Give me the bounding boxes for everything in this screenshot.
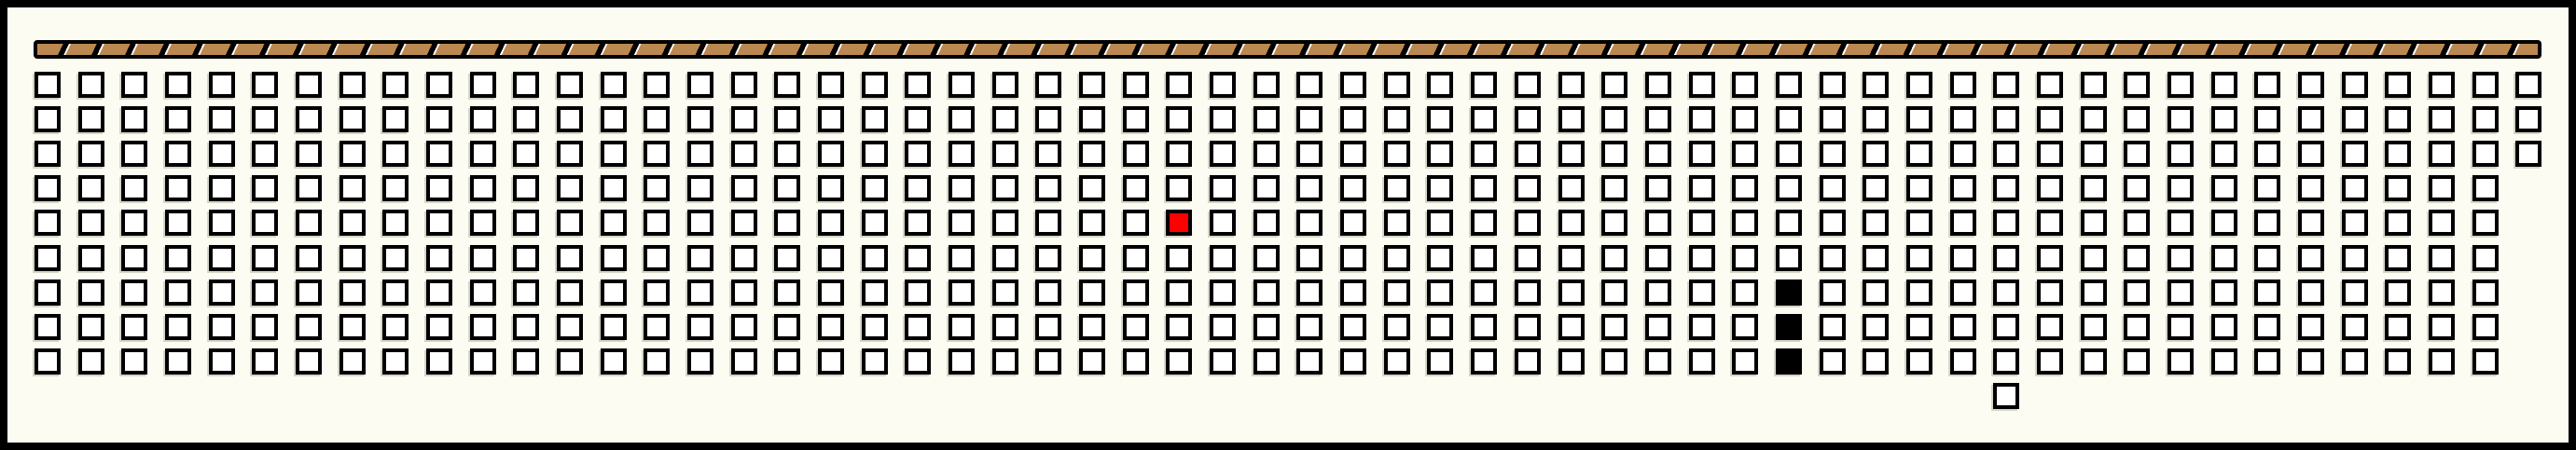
seat-cell[interactable]	[2472, 106, 2499, 132]
seat-cell[interactable]	[1210, 280, 1236, 306]
seat-cell[interactable]	[992, 280, 1018, 306]
seat-cell[interactable]	[1427, 280, 1453, 306]
seat-cell[interactable]	[992, 245, 1018, 271]
seat-cell[interactable]	[2472, 280, 2499, 306]
seat-cell[interactable]	[78, 280, 104, 306]
seat-cell[interactable]	[1601, 141, 1627, 167]
seat-cell[interactable]	[2298, 175, 2324, 201]
seat-cell[interactable]	[1035, 348, 1061, 375]
seat-cell[interactable]	[252, 348, 278, 375]
seat-cell[interactable]	[1820, 314, 1846, 340]
seat-cell[interactable]	[2429, 245, 2455, 271]
seat-cell[interactable]	[2124, 348, 2150, 375]
seat-cell[interactable]	[818, 175, 844, 201]
seat-cell[interactable]	[687, 245, 713, 271]
seat-cell[interactable]	[1776, 210, 1802, 236]
seat-cell[interactable]	[35, 245, 61, 271]
seat-cell[interactable]	[1166, 141, 1192, 167]
seat-cell[interactable]	[513, 72, 539, 98]
seat-cell[interactable]	[1166, 314, 1192, 340]
seat-cell[interactable]	[644, 348, 670, 375]
seat-cell[interactable]	[1427, 106, 1453, 132]
seat-cell[interactable]	[2385, 314, 2411, 340]
seat-cell[interactable]	[1863, 106, 1889, 132]
seat-cell[interactable]	[426, 348, 452, 375]
seat-cell[interactable]	[1601, 175, 1627, 201]
seat-cell[interactable]	[2037, 141, 2063, 167]
seat-cell[interactable]	[2472, 314, 2499, 340]
seat-cell[interactable]	[296, 210, 322, 236]
seat-cell[interactable]	[1210, 106, 1236, 132]
seat-cell[interactable]	[774, 72, 800, 98]
seat-cell[interactable]	[1079, 210, 1105, 236]
seat-cell[interactable]	[1993, 72, 2019, 98]
seat-cell[interactable]	[905, 210, 931, 236]
seat-cell[interactable]	[1471, 314, 1497, 340]
seat-cell[interactable]	[1645, 210, 1671, 236]
seat-cell[interactable]	[731, 175, 757, 201]
seat-cell[interactable]	[382, 314, 409, 340]
seat-cell[interactable]	[426, 245, 452, 271]
seat-cell[interactable]	[209, 245, 235, 271]
seat-cell[interactable]	[1732, 280, 1758, 306]
seat-cell[interactable]	[513, 245, 539, 271]
seat-cell[interactable]	[1253, 175, 1280, 201]
seat-cell[interactable]	[1993, 175, 2019, 201]
seat-cell[interactable]	[1210, 245, 1236, 271]
seat-cell[interactable]	[1296, 314, 1323, 340]
seat-cell[interactable]	[35, 72, 61, 98]
seat-cell[interactable]	[1123, 245, 1149, 271]
seat-cell[interactable]	[2124, 245, 2150, 271]
seat-cell[interactable]	[1950, 175, 1976, 201]
seat-cell[interactable]	[905, 72, 931, 98]
seat-cell[interactable]	[862, 314, 888, 340]
seat-cell[interactable]	[949, 175, 975, 201]
seat-cell[interactable]	[774, 106, 800, 132]
seat-cell[interactable]	[1471, 210, 1497, 236]
seat-cell[interactable]	[1906, 280, 1932, 306]
seat-cell[interactable]	[382, 72, 409, 98]
seat-cell[interactable]	[949, 348, 975, 375]
seat-cell[interactable]	[2081, 175, 2107, 201]
seat-cell[interactable]	[1558, 72, 1585, 98]
seat-cell[interactable]	[2124, 106, 2150, 132]
seat-cell[interactable]	[1601, 106, 1627, 132]
seat-cell[interactable]	[1645, 245, 1671, 271]
seat-cell[interactable]	[557, 141, 583, 167]
seat-cell[interactable]	[470, 245, 496, 271]
seat-cell[interactable]	[731, 106, 757, 132]
seat-cell[interactable]	[2254, 175, 2280, 201]
seat-cell[interactable]	[2124, 141, 2150, 167]
seat-cell[interactable]	[2081, 106, 2107, 132]
seat-cell[interactable]	[2124, 72, 2150, 98]
seat-cell[interactable]	[1863, 141, 1889, 167]
seat-cell[interactable]	[296, 348, 322, 375]
seat-cell[interactable]	[1079, 175, 1105, 201]
seat-cell[interactable]	[1732, 210, 1758, 236]
seat-cell[interactable]	[818, 314, 844, 340]
seat-cell[interactable]	[905, 245, 931, 271]
seat-cell[interactable]	[2211, 280, 2237, 306]
seat-cell[interactable]	[1384, 72, 1410, 98]
seat-cell[interactable]	[1689, 141, 1715, 167]
seat-cell[interactable]	[296, 141, 322, 167]
seat-cell[interactable]	[2342, 175, 2368, 201]
seat-cell[interactable]	[1471, 106, 1497, 132]
seat-cell[interactable]	[2342, 314, 2368, 340]
seat-cell[interactable]	[1166, 210, 1192, 236]
seat-cell[interactable]	[1384, 210, 1410, 236]
seat-cell[interactable]	[1427, 348, 1453, 375]
seat-cell[interactable]	[1035, 245, 1061, 271]
seat-cell[interactable]	[2342, 280, 2368, 306]
seat-cell[interactable]	[1079, 106, 1105, 132]
seat-cell[interactable]	[470, 141, 496, 167]
seat-cell[interactable]	[470, 175, 496, 201]
seat-cell[interactable]	[687, 348, 713, 375]
seat-cell[interactable]	[862, 280, 888, 306]
seat-cell[interactable]	[296, 314, 322, 340]
seat-cell[interactable]	[1340, 175, 1366, 201]
seat-cell[interactable]	[121, 280, 147, 306]
seat-cell[interactable]	[774, 141, 800, 167]
seat-cell[interactable]	[296, 175, 322, 201]
seat-cell[interactable]	[121, 245, 147, 271]
seat-cell[interactable]	[1601, 72, 1627, 98]
seat-cell[interactable]	[339, 72, 366, 98]
seat-cell[interactable]	[1645, 314, 1671, 340]
seat-cell[interactable]	[2211, 106, 2237, 132]
seat-cell[interactable]	[1732, 175, 1758, 201]
seat-cell[interactable]	[2385, 175, 2411, 201]
seat-cell[interactable]	[513, 141, 539, 167]
seat-cell[interactable]	[426, 280, 452, 306]
seat-cell[interactable]	[557, 245, 583, 271]
seat-cell[interactable]	[818, 280, 844, 306]
seat-cell[interactable]	[687, 314, 713, 340]
seat-cell[interactable]	[2211, 245, 2237, 271]
seat-cell[interactable]	[2342, 348, 2368, 375]
seat-cell[interactable]	[2472, 141, 2499, 167]
seat-cell[interactable]	[949, 72, 975, 98]
seat-cell[interactable]	[2515, 106, 2541, 132]
seat-cell[interactable]	[426, 314, 452, 340]
seat-cell[interactable]	[1427, 314, 1453, 340]
seat-cell[interactable]	[687, 141, 713, 167]
seat-cell[interactable]	[1384, 175, 1410, 201]
seat-cell[interactable]	[121, 141, 147, 167]
seat-cell[interactable]	[296, 245, 322, 271]
seat-cell[interactable]	[1035, 72, 1061, 98]
seat-cell[interactable]	[818, 72, 844, 98]
seat-cell[interactable]	[1515, 314, 1541, 340]
seat-cell[interactable]	[2385, 106, 2411, 132]
seat-cell[interactable]	[2472, 175, 2499, 201]
seat-cell[interactable]	[1515, 175, 1541, 201]
seat-cell[interactable]	[1340, 141, 1366, 167]
seat-cell[interactable]	[1123, 72, 1149, 98]
seat-cell[interactable]	[209, 280, 235, 306]
seat-cell[interactable]	[992, 210, 1018, 236]
seat-cell[interactable]	[2211, 72, 2237, 98]
seat-cell[interactable]	[1384, 280, 1410, 306]
seat-cell[interactable]	[1079, 72, 1105, 98]
seat-cell[interactable]	[78, 175, 104, 201]
seat-cell[interactable]	[731, 314, 757, 340]
seat-cell[interactable]	[992, 314, 1018, 340]
seat-cell[interactable]	[2342, 72, 2368, 98]
seat-cell[interactable]	[1906, 141, 1932, 167]
seat-cell[interactable]	[1993, 348, 2019, 375]
seat-cell[interactable]	[2342, 141, 2368, 167]
seat-cell[interactable]	[2298, 348, 2324, 375]
seat-cell[interactable]	[339, 348, 366, 375]
seat-cell[interactable]	[1166, 245, 1192, 271]
seat-cell[interactable]	[2254, 245, 2280, 271]
seat-cell[interactable]	[2167, 72, 2194, 98]
seat-cell[interactable]	[1471, 280, 1497, 306]
seat-cell[interactable]	[2211, 314, 2237, 340]
seat-cell[interactable]	[1820, 175, 1846, 201]
seat-cell[interactable]	[1601, 314, 1627, 340]
seat-cell[interactable]	[252, 245, 278, 271]
seat-cell[interactable]	[470, 210, 496, 236]
seat-cell[interactable]	[1340, 245, 1366, 271]
seat-cell[interactable]	[2429, 141, 2455, 167]
seat-cell[interactable]	[2037, 280, 2063, 306]
seat-cell[interactable]	[905, 106, 931, 132]
seat-cell[interactable]	[1123, 314, 1149, 340]
seat-cell[interactable]	[644, 314, 670, 340]
seat-cell[interactable]	[165, 106, 191, 132]
seat-cell[interactable]	[1776, 106, 1802, 132]
seat-cell[interactable]	[818, 141, 844, 167]
seat-cell[interactable]	[2254, 348, 2280, 375]
seat-cell[interactable]	[382, 348, 409, 375]
seat-cell[interactable]	[862, 72, 888, 98]
seat-cell[interactable]	[949, 280, 975, 306]
seat-cell[interactable]	[1601, 280, 1627, 306]
seat-cell[interactable]	[1820, 106, 1846, 132]
seat-cell[interactable]	[1689, 280, 1715, 306]
seat-cell[interactable]	[35, 106, 61, 132]
seat-cell[interactable]	[1820, 72, 1846, 98]
seat-cell[interactable]	[1340, 106, 1366, 132]
seat-cell[interactable]	[2472, 348, 2499, 375]
seat-cell[interactable]	[1645, 348, 1671, 375]
seat-cell[interactable]	[1471, 141, 1497, 167]
seat-cell[interactable]	[1210, 314, 1236, 340]
seat-cell[interactable]	[905, 280, 931, 306]
seat-cell[interactable]	[1079, 245, 1105, 271]
seat-cell[interactable]	[1950, 210, 1976, 236]
seat-cell[interactable]	[2037, 106, 2063, 132]
seat-cell[interactable]	[1166, 72, 1192, 98]
seat-cell[interactable]	[644, 210, 670, 236]
seat-cell[interactable]	[1253, 210, 1280, 236]
seat-cell[interactable]	[1166, 348, 1192, 375]
seat-cell[interactable]	[1906, 72, 1932, 98]
seat-cell[interactable]	[121, 106, 147, 132]
seat-cell[interactable]	[1820, 280, 1846, 306]
seat-cell[interactable]	[2515, 141, 2541, 167]
seat-cell[interactable]	[121, 175, 147, 201]
seat-cell[interactable]	[1993, 314, 2019, 340]
seat-cell[interactable]	[2472, 210, 2499, 236]
seat-cell[interactable]	[1427, 72, 1453, 98]
seat-cell[interactable]	[2124, 314, 2150, 340]
seat-cell[interactable]	[252, 280, 278, 306]
seat-cell[interactable]	[1950, 72, 1976, 98]
seat-cell[interactable]	[774, 348, 800, 375]
seat-cell[interactable]	[557, 280, 583, 306]
seat-cell[interactable]	[644, 141, 670, 167]
seat-cell[interactable]	[252, 210, 278, 236]
seat-cell[interactable]	[2298, 141, 2324, 167]
seat-cell[interactable]	[1079, 141, 1105, 167]
seat-cell[interactable]	[1515, 245, 1541, 271]
seat-cell[interactable]	[513, 175, 539, 201]
seat-cell[interactable]	[2385, 348, 2411, 375]
seat-cell[interactable]	[1515, 280, 1541, 306]
seat-cell[interactable]	[78, 314, 104, 340]
seat-cell[interactable]	[1820, 348, 1846, 375]
seat-cell[interactable]	[1253, 141, 1280, 167]
seat-cell[interactable]	[1558, 106, 1585, 132]
seat-cell[interactable]	[1950, 106, 1976, 132]
seat-cell[interactable]	[774, 210, 800, 236]
seat-cell[interactable]	[687, 106, 713, 132]
seat-cell[interactable]	[1123, 141, 1149, 167]
seat-cell[interactable]	[165, 141, 191, 167]
seat-cell[interactable]	[1253, 348, 1280, 375]
seat-cell[interactable]	[513, 210, 539, 236]
seat-cell[interactable]	[339, 175, 366, 201]
seat-cell[interactable]	[2385, 72, 2411, 98]
seat-cell[interactable]	[121, 348, 147, 375]
seat-cell[interactable]	[1645, 175, 1671, 201]
seat-cell[interactable]	[339, 245, 366, 271]
seat-cell[interactable]	[2385, 280, 2411, 306]
seat-cell[interactable]	[339, 280, 366, 306]
seat-cell[interactable]	[2254, 280, 2280, 306]
seat-cell[interactable]	[1384, 106, 1410, 132]
seat-cell[interactable]	[1253, 245, 1280, 271]
seat-cell[interactable]	[1515, 106, 1541, 132]
seat-cell[interactable]	[1253, 314, 1280, 340]
seat-cell[interactable]	[209, 141, 235, 167]
seat-cell[interactable]	[1776, 348, 1802, 375]
seat-cell[interactable]	[687, 280, 713, 306]
seat-cell[interactable]	[1035, 280, 1061, 306]
seat-cell[interactable]	[209, 175, 235, 201]
seat-cell[interactable]	[1427, 175, 1453, 201]
seat-cell[interactable]	[1035, 175, 1061, 201]
seat-cell[interactable]	[2167, 314, 2194, 340]
seat-cell[interactable]	[78, 348, 104, 375]
seat-cell[interactable]	[1689, 314, 1715, 340]
seat-cell[interactable]	[1689, 245, 1715, 271]
seat-cell[interactable]	[862, 348, 888, 375]
seat-cell[interactable]	[296, 280, 322, 306]
seat-cell[interactable]	[774, 245, 800, 271]
seat-cell[interactable]	[1820, 245, 1846, 271]
seat-cell[interactable]	[2342, 210, 2368, 236]
seat-cell[interactable]	[2167, 348, 2194, 375]
seat-cell[interactable]	[2429, 175, 2455, 201]
seat-cell[interactable]	[1253, 280, 1280, 306]
seat-cell[interactable]	[1340, 210, 1366, 236]
seat-cell[interactable]	[339, 106, 366, 132]
seat-cell[interactable]	[252, 175, 278, 201]
seat-cell[interactable]	[2515, 72, 2541, 98]
seat-cell[interactable]	[557, 175, 583, 201]
seat-cell[interactable]	[382, 245, 409, 271]
seat-cell[interactable]	[601, 141, 627, 167]
seat-cell[interactable]	[470, 348, 496, 375]
seat-cell[interactable]	[1210, 175, 1236, 201]
seat-cell[interactable]	[1776, 245, 1802, 271]
seat-cell[interactable]	[731, 245, 757, 271]
seat-cell[interactable]	[949, 141, 975, 167]
seat-cell[interactable]	[1689, 72, 1715, 98]
seat-cell[interactable]	[644, 280, 670, 306]
seat-cell[interactable]	[862, 245, 888, 271]
seat-cell[interactable]	[2472, 72, 2499, 98]
seat-cell[interactable]	[2429, 72, 2455, 98]
seat-cell[interactable]	[35, 314, 61, 340]
seat-cell[interactable]	[1689, 348, 1715, 375]
seat-cell[interactable]	[1950, 141, 1976, 167]
seat-cell[interactable]	[1993, 106, 2019, 132]
seat-cell[interactable]	[1210, 141, 1236, 167]
seat-cell[interactable]	[1427, 141, 1453, 167]
seat-cell[interactable]	[2211, 175, 2237, 201]
seat-cell[interactable]	[382, 280, 409, 306]
seat-cell[interactable]	[1384, 245, 1410, 271]
seat-cell[interactable]	[35, 348, 61, 375]
seat-cell[interactable]	[601, 175, 627, 201]
seat-cell[interactable]	[774, 175, 800, 201]
seat-cell[interactable]	[949, 245, 975, 271]
seat-cell[interactable]	[426, 72, 452, 98]
seat-cell[interactable]	[644, 175, 670, 201]
seat-cell[interactable]	[557, 72, 583, 98]
seat-cell[interactable]	[2081, 280, 2107, 306]
seat-cell[interactable]	[1123, 106, 1149, 132]
seat-cell[interactable]	[1035, 141, 1061, 167]
seat-cell[interactable]	[601, 280, 627, 306]
seat-cell[interactable]	[78, 72, 104, 98]
seat-cell[interactable]	[1558, 280, 1585, 306]
seat-cell[interactable]	[1079, 280, 1105, 306]
seat-cell[interactable]	[2298, 245, 2324, 271]
seat-cell[interactable]	[1906, 106, 1932, 132]
seat-cell[interactable]	[1732, 141, 1758, 167]
seat-cell[interactable]	[818, 106, 844, 132]
seat-cell[interactable]	[209, 314, 235, 340]
seat-cell[interactable]	[121, 210, 147, 236]
seat-cell[interactable]	[1166, 280, 1192, 306]
seat-cell[interactable]	[2472, 245, 2499, 271]
seat-cell[interactable]	[1515, 348, 1541, 375]
seat-cell[interactable]	[601, 210, 627, 236]
seat-cell[interactable]	[1601, 348, 1627, 375]
seat-cell[interactable]	[1384, 314, 1410, 340]
seat-cell[interactable]	[1950, 245, 1976, 271]
